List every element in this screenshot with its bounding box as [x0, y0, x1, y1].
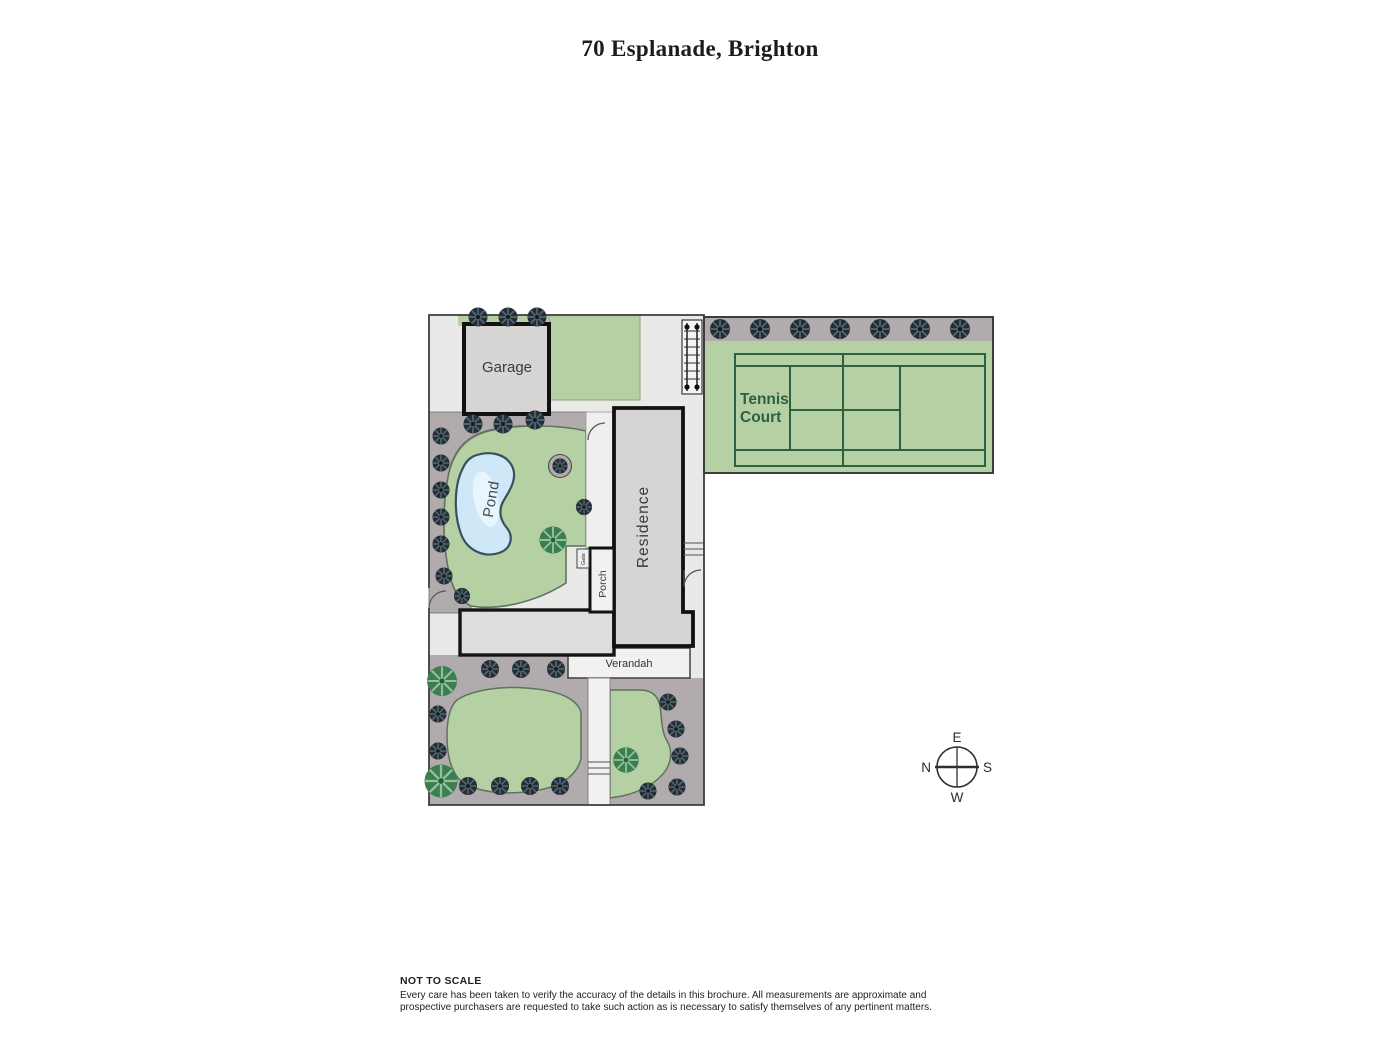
shrub-icon	[613, 747, 639, 773]
tree-icon	[830, 319, 850, 339]
tree-icon	[499, 308, 518, 327]
tree-icon	[552, 458, 567, 473]
tree-icon	[671, 747, 688, 764]
tree-icon	[432, 508, 449, 525]
tree-icon	[551, 777, 569, 795]
residence-wing	[460, 610, 614, 655]
tree-icon	[750, 319, 770, 339]
porch-label: Porch	[597, 570, 609, 598]
verandah-label: Verandah	[605, 658, 652, 670]
tree-icon	[790, 319, 810, 339]
svg-text:Court: Court	[740, 409, 781, 426]
tree-icon	[432, 427, 449, 444]
tree-icon	[521, 777, 539, 795]
tree-icon	[950, 319, 970, 339]
brochure-page: 70 Esplanade, Brighton	[0, 0, 1400, 1050]
tree-icon	[870, 319, 890, 339]
compass-left-label: N	[921, 760, 931, 775]
rear-path	[588, 678, 610, 805]
tree-icon	[576, 499, 592, 515]
not-to-scale-label: NOT TO SCALE	[400, 975, 1040, 987]
front-lawn	[549, 315, 640, 400]
disclaimer-line-1: Every care has been taken to verify the …	[400, 990, 1040, 1002]
tree-icon	[639, 782, 656, 799]
tree-icon	[667, 720, 684, 737]
tree-icon	[481, 660, 499, 678]
tree-icon	[668, 778, 685, 795]
gate-label: Gate	[581, 553, 587, 565]
compass-right-label: S	[983, 760, 992, 775]
garage-label: Garage	[482, 359, 532, 376]
shrub-icon	[427, 666, 457, 696]
tree-icon	[659, 693, 676, 710]
tree-icon	[526, 411, 545, 430]
compass-top-label: E	[952, 730, 961, 745]
tree-icon	[494, 415, 513, 434]
residence-label: Residence	[635, 486, 652, 568]
disclaimer-line-2: prospective purchasers are requested to …	[400, 1002, 1040, 1014]
tree-icon	[469, 308, 488, 327]
tree-icon	[512, 660, 530, 678]
tree-icon	[435, 567, 452, 584]
tree-icon	[432, 535, 449, 552]
tree-icon	[429, 742, 446, 759]
compass-rose: E S W N	[921, 730, 992, 805]
shrub-icon	[540, 527, 567, 554]
tree-icon	[432, 481, 449, 498]
tree-icon	[547, 660, 565, 678]
disclaimer: NOT TO SCALE Every care has been taken t…	[400, 975, 1040, 1013]
tree-icon	[528, 308, 547, 327]
tree-icon	[464, 415, 483, 434]
compass-bottom-label: W	[951, 790, 964, 805]
tree-icon	[710, 319, 730, 339]
svg-text:Tennis: Tennis	[740, 391, 789, 408]
tree-icon	[910, 319, 930, 339]
site-plan: Garage Residence Porch Gate Pond Veranda…	[0, 0, 1400, 1050]
tree-icon	[429, 705, 446, 722]
tree-icon	[491, 777, 509, 795]
shrub-icon	[425, 765, 458, 798]
tree-icon	[459, 777, 477, 795]
tree-icon	[454, 588, 470, 604]
pergola	[682, 320, 702, 394]
residence-area	[614, 408, 693, 646]
tree-icon	[432, 454, 449, 471]
